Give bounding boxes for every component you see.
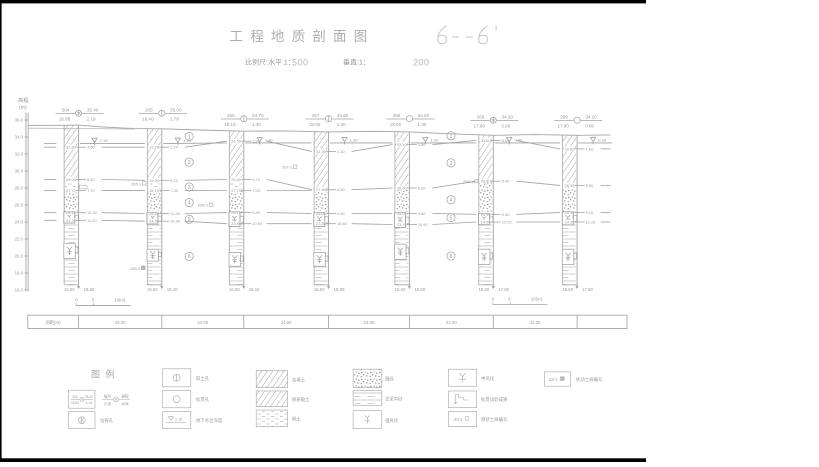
- svg-text:29.00: 29.00: [66, 177, 77, 182]
- svg-text:1.60: 1.60: [586, 146, 594, 151]
- svg-text:7.70: 7.70: [87, 188, 95, 193]
- svg-text:6.10: 6.10: [170, 178, 178, 183]
- svg-text:1.30: 1.30: [350, 137, 359, 142]
- svg-text:2.20: 2.20: [170, 145, 178, 150]
- svg-text:18.40: 18.40: [167, 287, 178, 292]
- svg-text:1.30: 1.30: [417, 122, 426, 127]
- svg-text:18.40: 18.40: [142, 117, 154, 122]
- svg-text:杂填土: 杂填土: [292, 376, 306, 383]
- svg-text:垂直:1：: 垂直:1：: [343, 58, 370, 67]
- svg-text:高程: 高程: [121, 394, 129, 399]
- svg-text:5: 5: [450, 216, 453, 222]
- svg-text:(m): (m): [19, 105, 27, 111]
- svg-text:24.00: 24.00: [446, 320, 457, 325]
- svg-text:标贯试验成果: 标贯试验成果: [481, 396, 508, 403]
- svg-text:18.80: 18.80: [84, 287, 95, 292]
- svg-text:18.00: 18.00: [390, 122, 402, 127]
- svg-text:10.20: 10.20: [502, 220, 513, 225]
- svg-text:35.00: 35.00: [170, 107, 182, 112]
- svg-text:2.18: 2.18: [100, 138, 109, 143]
- svg-text:扰动土样编号: 扰动土样编号: [576, 376, 603, 383]
- svg-text:33.60: 33.60: [481, 138, 492, 143]
- svg-text:29.00: 29.00: [231, 177, 242, 182]
- svg-text:4: 4: [188, 201, 191, 207]
- svg-text:18.10: 18.10: [249, 287, 260, 292]
- svg-text:标贯孔: 标贯孔: [196, 396, 210, 403]
- svg-text:16.60: 16.60: [314, 287, 325, 292]
- svg-text:265: 265: [145, 107, 153, 112]
- svg-text:0.60: 0.60: [502, 138, 510, 143]
- svg-text:2.30: 2.30: [337, 149, 345, 154]
- svg-text:266-1: 266-1: [198, 203, 209, 208]
- svg-text:267: 267: [312, 113, 320, 118]
- svg-text:中风化: 中风化: [481, 375, 495, 382]
- svg-text:34.0: 34.0: [15, 135, 24, 140]
- svg-text:2: 2: [450, 161, 453, 167]
- svg-text:16.60: 16.60: [229, 287, 240, 292]
- svg-text:0.90: 0.90: [501, 124, 510, 129]
- svg-text:34.20: 34.20: [502, 114, 514, 119]
- svg-text:5: 5: [188, 217, 191, 223]
- svg-text:1.20: 1.20: [252, 139, 260, 144]
- svg-text:18.0: 18.0: [15, 271, 24, 276]
- svg-text:16.60: 16.60: [395, 287, 406, 292]
- svg-text:16.60: 16.60: [147, 287, 158, 292]
- svg-text:5.90: 5.90: [586, 183, 594, 188]
- svg-text:265-2: 265-2: [130, 266, 141, 271]
- svg-text:7.30: 7.30: [170, 188, 178, 193]
- svg-text:266: 266: [227, 113, 235, 118]
- svg-text:34.60: 34.60: [337, 113, 349, 118]
- svg-text:2: 2: [188, 160, 191, 166]
- svg-text:264: 264: [62, 107, 70, 112]
- svg-text:10.90: 10.90: [252, 221, 263, 226]
- svg-text:强风化: 强风化: [385, 417, 399, 424]
- svg-text:32.0: 32.0: [15, 152, 24, 157]
- svg-text:33.10: 33.10: [397, 142, 408, 147]
- svg-text:10(m): 10(m): [114, 297, 126, 302]
- svg-text:32.30: 32.30: [316, 149, 327, 154]
- svg-text:9.60: 9.60: [337, 211, 345, 216]
- svg-text:图例: 图例: [91, 369, 120, 380]
- svg-text:16.60: 16.60: [562, 287, 573, 292]
- svg-text:3: 3: [188, 185, 191, 191]
- svg-text:钻探孔: 钻探孔: [100, 417, 114, 424]
- svg-text:10.30: 10.30: [87, 210, 98, 215]
- svg-text:18.80: 18.80: [71, 401, 79, 405]
- svg-text:6: 6: [450, 254, 453, 260]
- svg-text:2.18: 2.18: [86, 401, 92, 405]
- svg-text:268-1: 268-1: [463, 179, 474, 184]
- svg-text:33.50: 33.50: [231, 139, 242, 144]
- svg-text:32.60: 32.60: [565, 146, 576, 151]
- svg-text:10.00: 10.00: [170, 211, 181, 216]
- svg-text:孔深: 孔深: [104, 401, 112, 406]
- svg-text:24.30: 24.30: [530, 320, 541, 325]
- svg-text:22.0: 22.0: [15, 237, 24, 242]
- svg-text:1.50: 1.50: [418, 142, 426, 147]
- svg-text:28.30: 28.30: [565, 183, 576, 188]
- svg-text:10.80: 10.80: [337, 221, 348, 226]
- svg-text:18.00: 18.00: [414, 287, 425, 292]
- svg-text:500: 500: [292, 58, 309, 68]
- svg-text:34.20: 34.20: [585, 114, 597, 119]
- svg-text:9.30: 9.30: [502, 212, 510, 217]
- svg-text:17.60: 17.60: [557, 124, 569, 129]
- svg-text:26.0: 26.0: [15, 203, 24, 208]
- svg-text:35.40: 35.40: [87, 107, 99, 112]
- svg-text:269: 269: [476, 114, 484, 119]
- svg-text:11.20: 11.20: [87, 218, 97, 223]
- svg-text:编号: 编号: [104, 394, 112, 399]
- svg-text:17.60: 17.60: [498, 287, 509, 292]
- svg-text:27.70: 27.70: [66, 188, 77, 193]
- svg-text:10(m): 10(m): [531, 297, 543, 302]
- svg-text:原状土样编号: 原状土样编号: [481, 416, 508, 423]
- svg-text:267-1: 267-1: [282, 165, 293, 170]
- svg-text:24.0: 24.0: [15, 220, 24, 225]
- svg-text:2.18: 2.18: [175, 418, 182, 422]
- svg-text:29.30: 29.30: [149, 178, 160, 183]
- svg-text:6: 6: [188, 254, 191, 260]
- svg-text:28.80: 28.80: [481, 179, 492, 184]
- svg-text:200: 200: [413, 58, 430, 68]
- svg-text:1.40: 1.40: [265, 137, 274, 142]
- svg-text:4: 4: [450, 198, 453, 204]
- svg-text:24.00: 24.00: [364, 320, 375, 325]
- svg-text:17.60: 17.60: [474, 124, 486, 129]
- svg-text:比例尺:水平:1：: 比例尺:水平:1：: [245, 58, 295, 67]
- svg-text:24.00: 24.00: [115, 320, 126, 325]
- svg-text:265-1: 265-1: [131, 181, 142, 186]
- svg-text:9.10: 9.10: [586, 210, 594, 215]
- svg-text:1.78: 1.78: [170, 117, 179, 122]
- svg-text:6.80: 6.80: [337, 187, 345, 192]
- svg-text:6.40: 6.40: [87, 177, 95, 182]
- svg-text:28.10: 28.10: [149, 188, 160, 193]
- svg-text:10.20: 10.20: [586, 220, 597, 225]
- svg-text:6.60: 6.60: [418, 186, 426, 191]
- svg-text:18.10: 18.10: [224, 122, 236, 127]
- svg-text:32.80: 32.80: [66, 145, 77, 150]
- svg-text:水深: 水深: [121, 401, 129, 406]
- svg-text:0.90: 0.90: [515, 137, 524, 142]
- svg-text:20.0: 20.0: [15, 254, 24, 259]
- svg-text:粉土: 粉土: [292, 416, 301, 423]
- svg-text:9.60: 9.60: [252, 210, 260, 215]
- svg-text:299: 299: [560, 114, 568, 119]
- svg-text:16.60: 16.60: [479, 287, 490, 292]
- svg-text:圆砾: 圆砾: [385, 376, 394, 383]
- svg-text:27.80: 27.80: [316, 187, 327, 192]
- svg-text:1.30: 1.30: [431, 137, 440, 142]
- svg-text:间距(m): 间距(m): [45, 319, 61, 326]
- svg-text:淤泥中砂: 淤泥中砂: [385, 396, 403, 403]
- svg-text:30.0: 30.0: [15, 169, 24, 174]
- svg-text:27.70: 27.70: [231, 188, 242, 193]
- svg-text:23-1: 23-1: [549, 377, 558, 382]
- svg-text:取土孔: 取土孔: [196, 375, 210, 382]
- svg-text:9.60: 9.60: [418, 211, 426, 216]
- svg-text:1.30: 1.30: [337, 122, 346, 127]
- svg-text:28.0: 28.0: [15, 186, 24, 191]
- svg-text:0.90: 0.90: [598, 137, 607, 142]
- svg-text:24.00: 24.00: [197, 320, 208, 325]
- svg-text:5.70: 5.70: [252, 177, 260, 182]
- svg-text:2.18: 2.18: [87, 117, 96, 122]
- svg-text:1: 1: [188, 134, 191, 140]
- svg-text:18.80: 18.80: [59, 117, 71, 122]
- svg-text:10.90: 10.90: [418, 222, 429, 227]
- svg-text:17.60: 17.60: [582, 287, 593, 292]
- svg-text:18.00: 18.00: [334, 287, 345, 292]
- svg-text:工程地质剖面图: 工程地质剖面图: [230, 29, 375, 44]
- svg-text:35.40: 35.40: [85, 395, 93, 399]
- svg-text:28.00: 28.00: [397, 186, 408, 191]
- svg-text:18.00: 18.00: [309, 122, 321, 127]
- svg-text:7.00: 7.00: [252, 188, 260, 193]
- svg-text:1: 1: [450, 134, 453, 140]
- svg-text:2.60: 2.60: [87, 145, 95, 150]
- svg-text:268: 268: [393, 113, 401, 118]
- svg-text:24.00: 24.00: [281, 320, 292, 325]
- svg-text:34.60: 34.60: [418, 113, 430, 118]
- svg-text:地下水位深度: 地下水位深度: [196, 417, 223, 424]
- svg-text:1.40: 1.40: [252, 122, 261, 127]
- svg-text:16.0: 16.0: [15, 288, 24, 293]
- svg-text:33.20: 33.20: [149, 145, 160, 150]
- svg-text:5.40: 5.40: [502, 179, 510, 184]
- svg-text:0.90: 0.90: [585, 124, 594, 129]
- svg-text:10.90: 10.90: [170, 219, 181, 224]
- svg-text:粉质黏土: 粉质黏土: [292, 396, 310, 403]
- svg-text:264: 264: [72, 395, 78, 399]
- svg-text:23-1: 23-1: [454, 417, 463, 422]
- svg-text:36.0: 36.0: [15, 118, 24, 123]
- svg-text:高程: 高程: [18, 96, 28, 104]
- svg-text:16.60: 16.60: [64, 287, 75, 292]
- svg-text:34.70: 34.70: [252, 113, 264, 118]
